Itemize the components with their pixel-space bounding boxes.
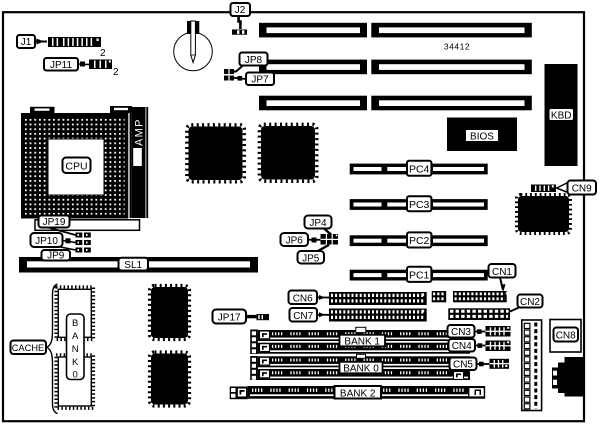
- svg-text:K: K: [72, 357, 79, 368]
- svg-text:CN5: CN5: [453, 360, 473, 371]
- svg-text:CN8: CN8: [556, 331, 576, 342]
- svg-text:BANK 1: BANK 1: [344, 336, 380, 347]
- svg-text:CACHE: CACHE: [12, 343, 45, 353]
- svg-text:CN2: CN2: [520, 297, 540, 308]
- svg-text:CPU: CPU: [65, 161, 87, 173]
- svg-text:SL1: SL1: [124, 260, 142, 271]
- svg-text:AMP: AMP: [133, 118, 145, 146]
- svg-text:KBD: KBD: [551, 111, 572, 122]
- svg-text:JP4: JP4: [309, 218, 327, 229]
- svg-text:PC2: PC2: [409, 235, 430, 247]
- svg-text:JP19: JP19: [43, 217, 66, 228]
- svg-text:CN6: CN6: [293, 294, 313, 305]
- svg-text:0: 0: [73, 370, 78, 381]
- svg-text:2: 2: [113, 67, 119, 78]
- svg-text:PC1: PC1: [409, 270, 430, 282]
- svg-text:JP5: JP5: [302, 253, 320, 264]
- svg-text:JP10: JP10: [35, 236, 58, 247]
- svg-text:PC3: PC3: [409, 199, 430, 211]
- svg-text:J2: J2: [235, 5, 246, 16]
- svg-text:JP11: JP11: [50, 60, 72, 71]
- svg-text:BIOS: BIOS: [470, 132, 494, 143]
- svg-text:JP8: JP8: [245, 55, 263, 66]
- svg-text:J1: J1: [21, 37, 32, 48]
- svg-text:JP6: JP6: [286, 236, 304, 247]
- svg-text:BANK 0: BANK 0: [343, 363, 379, 374]
- svg-text:BANK 2: BANK 2: [340, 388, 376, 399]
- svg-text:2: 2: [100, 48, 106, 59]
- svg-text:PC4: PC4: [409, 164, 430, 176]
- svg-text:JP7: JP7: [251, 75, 269, 86]
- svg-text:CN9: CN9: [572, 184, 592, 195]
- svg-text:CN4: CN4: [452, 341, 472, 352]
- svg-text:N: N: [72, 344, 79, 355]
- svg-text:CN3: CN3: [451, 327, 471, 338]
- svg-text:CN1: CN1: [492, 267, 512, 278]
- svg-text:CN7: CN7: [293, 311, 313, 322]
- svg-text:34412: 34412: [444, 42, 470, 52]
- svg-text:A: A: [72, 331, 79, 342]
- svg-text:JP17: JP17: [218, 313, 241, 324]
- svg-text:B: B: [72, 318, 78, 329]
- svg-text:JP9: JP9: [47, 251, 65, 262]
